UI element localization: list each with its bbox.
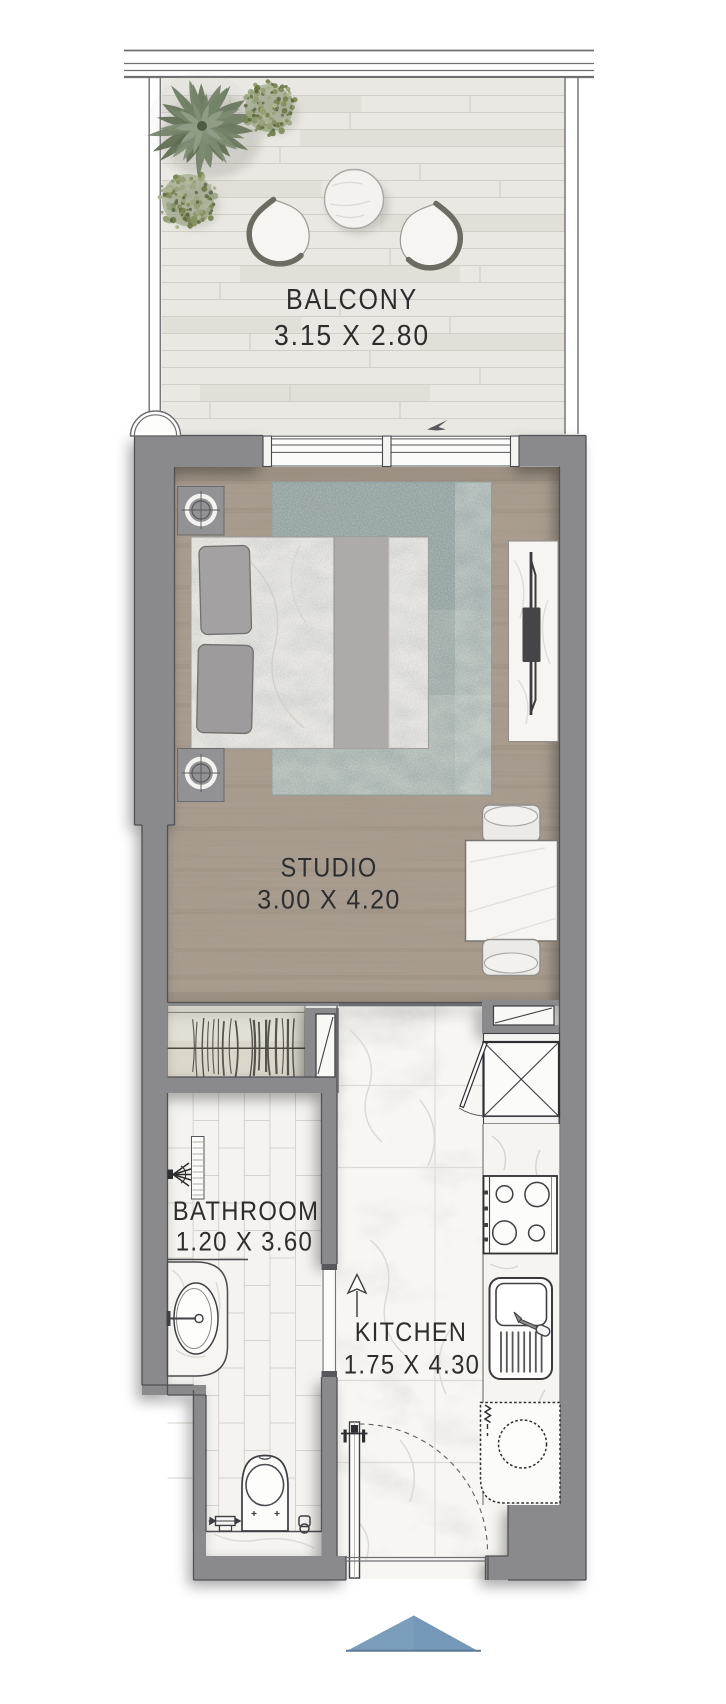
svg-text:BATHROOM: BATHROOM <box>173 1196 320 1226</box>
svg-text:1.20 X 3.60: 1.20 X 3.60 <box>176 1227 314 1257</box>
svg-text:1.75 X 4.30: 1.75 X 4.30 <box>344 1350 481 1380</box>
svg-text:3.15 X 2.80: 3.15 X 2.80 <box>274 320 430 352</box>
svg-text:KITCHEN: KITCHEN <box>355 1317 468 1347</box>
svg-text:BALCONY: BALCONY <box>286 284 418 316</box>
svg-text:3.00 X 4.20: 3.00 X 4.20 <box>257 885 401 915</box>
svg-text:STUDIO: STUDIO <box>281 853 378 883</box>
